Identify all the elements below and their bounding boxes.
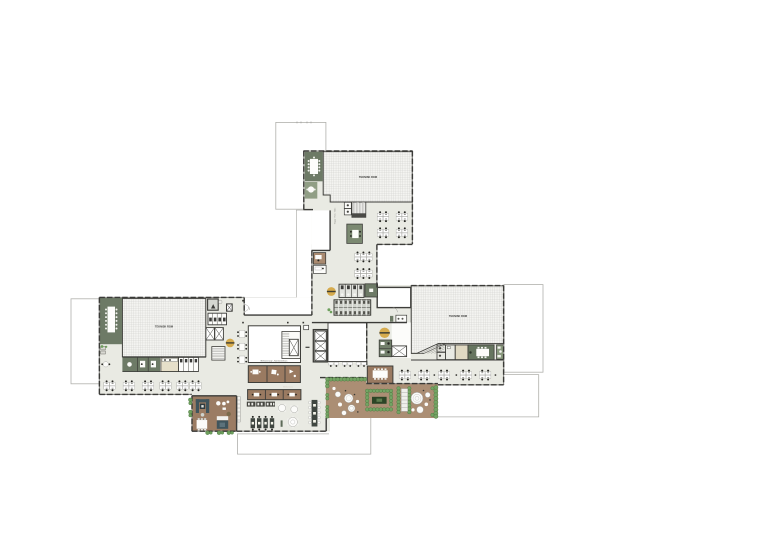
svg-text:Trapp · Heis · Side: Trapp · Heis · Side bbox=[335, 208, 337, 225]
svg-text:TEKNISK ROM: TEKNISK ROM bbox=[359, 175, 377, 179]
svg-text:Mellomrom: Mellomrom bbox=[283, 386, 293, 388]
svg-text:Mellometasje - Kantine/allrom: Mellometasje - Kantine/allrom bbox=[261, 360, 288, 363]
svg-text:TEKNISK ROM: TEKNISK ROM bbox=[155, 325, 173, 329]
svg-text:TEKNISK ROM: TEKNISK ROM bbox=[449, 314, 467, 318]
